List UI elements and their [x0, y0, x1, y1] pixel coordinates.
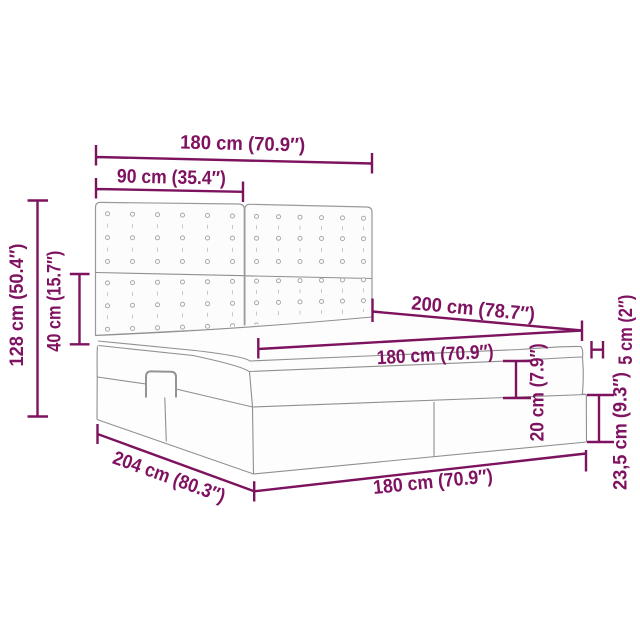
svg-text:90 cm (35.4″): 90 cm (35.4″): [117, 165, 226, 189]
svg-text:180 cm (70.9″): 180 cm (70.9″): [372, 465, 494, 499]
svg-text:20 cm (7.9″): 20 cm (7.9″): [527, 343, 549, 441]
svg-text:40 cm (15.7″): 40 cm (15.7″): [44, 251, 66, 352]
svg-text:128 cm (50.4″): 128 cm (50.4″): [6, 244, 28, 367]
svg-text:5 cm (2″): 5 cm (2″): [615, 295, 637, 365]
svg-text:23,5 cm (9.3″): 23,5 cm (9.3″): [610, 372, 632, 490]
svg-text:180 cm (70.9″): 180 cm (70.9″): [180, 132, 305, 157]
